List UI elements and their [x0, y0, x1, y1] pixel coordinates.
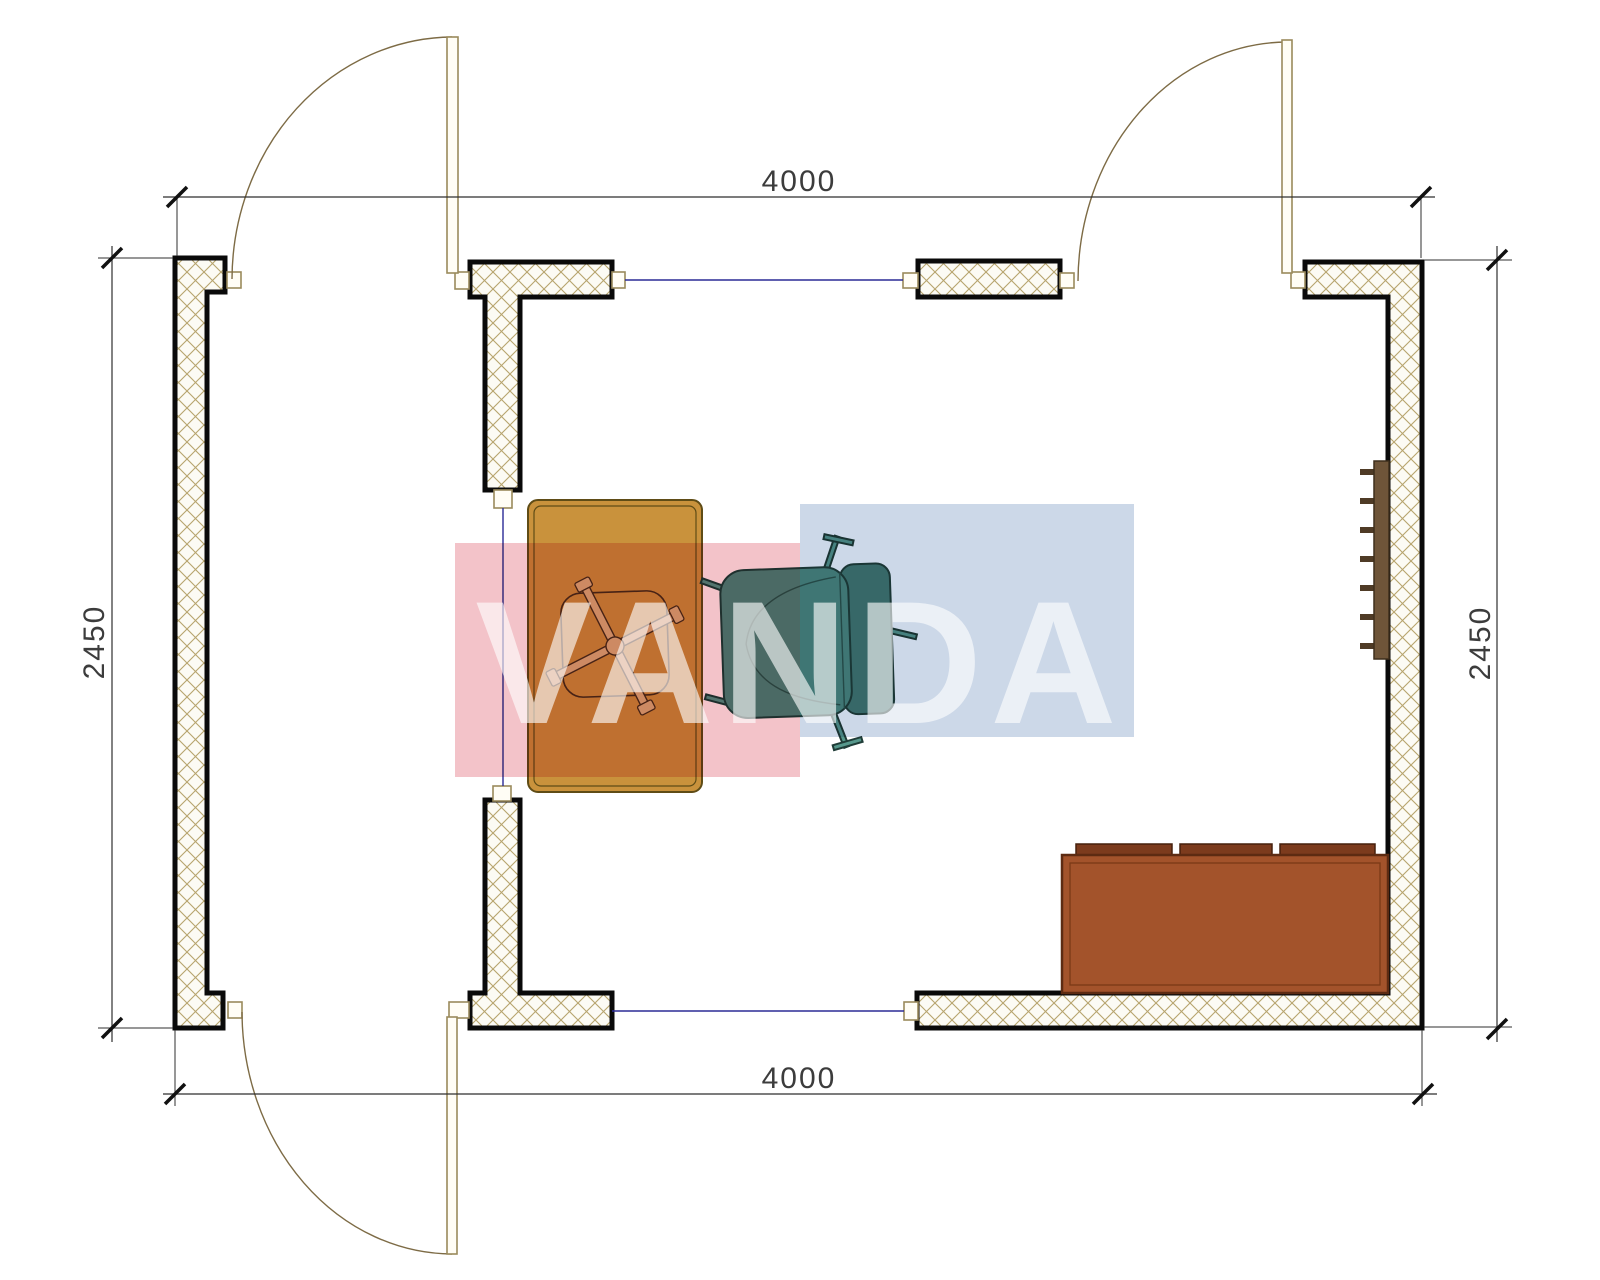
door-leaf	[447, 1017, 457, 1254]
watermark: VANDA	[455, 504, 1134, 777]
door-arc	[242, 1012, 452, 1254]
connector	[612, 272, 625, 288]
dimension-bottom: 4000	[163, 1030, 1437, 1106]
dimension-left: 2450	[78, 246, 173, 1042]
wall-left	[175, 258, 225, 1028]
wall-top-left-pier	[470, 262, 612, 490]
connector	[903, 273, 918, 288]
door-leaf	[1282, 40, 1292, 273]
sofa-body	[1062, 855, 1388, 993]
dimension-top: 4000	[163, 165, 1435, 258]
wall-bottom-left-pier	[470, 800, 612, 1028]
floor-plan-canvas: 4000 4000 2450 2450 VANDA	[0, 0, 1600, 1280]
connector	[493, 786, 511, 801]
dim-label-left: 2450	[78, 605, 111, 680]
dim-label-right: 2450	[1464, 606, 1497, 681]
dimension-right: 2450	[1424, 246, 1512, 1042]
door-arc	[1078, 42, 1287, 281]
dim-label-top: 4000	[762, 165, 837, 198]
sofa	[1062, 844, 1388, 993]
connector	[449, 1002, 469, 1018]
connector	[904, 1002, 918, 1020]
connector	[228, 1002, 242, 1018]
watermark-text: VANDA	[475, 566, 1124, 761]
wall-top-middle	[918, 261, 1060, 297]
radiator-body	[1374, 461, 1389, 659]
floor-plan-drawing: 4000 4000 2450 2450 VANDA	[0, 0, 1600, 1280]
door-leaf	[447, 37, 458, 273]
door-arc	[232, 37, 452, 279]
connector	[1291, 272, 1305, 288]
connector	[455, 272, 469, 289]
connector	[227, 272, 241, 288]
connector	[494, 490, 512, 508]
dim-label-bottom: 4000	[762, 1062, 837, 1095]
connector	[1060, 273, 1074, 288]
radiator	[1360, 461, 1389, 659]
